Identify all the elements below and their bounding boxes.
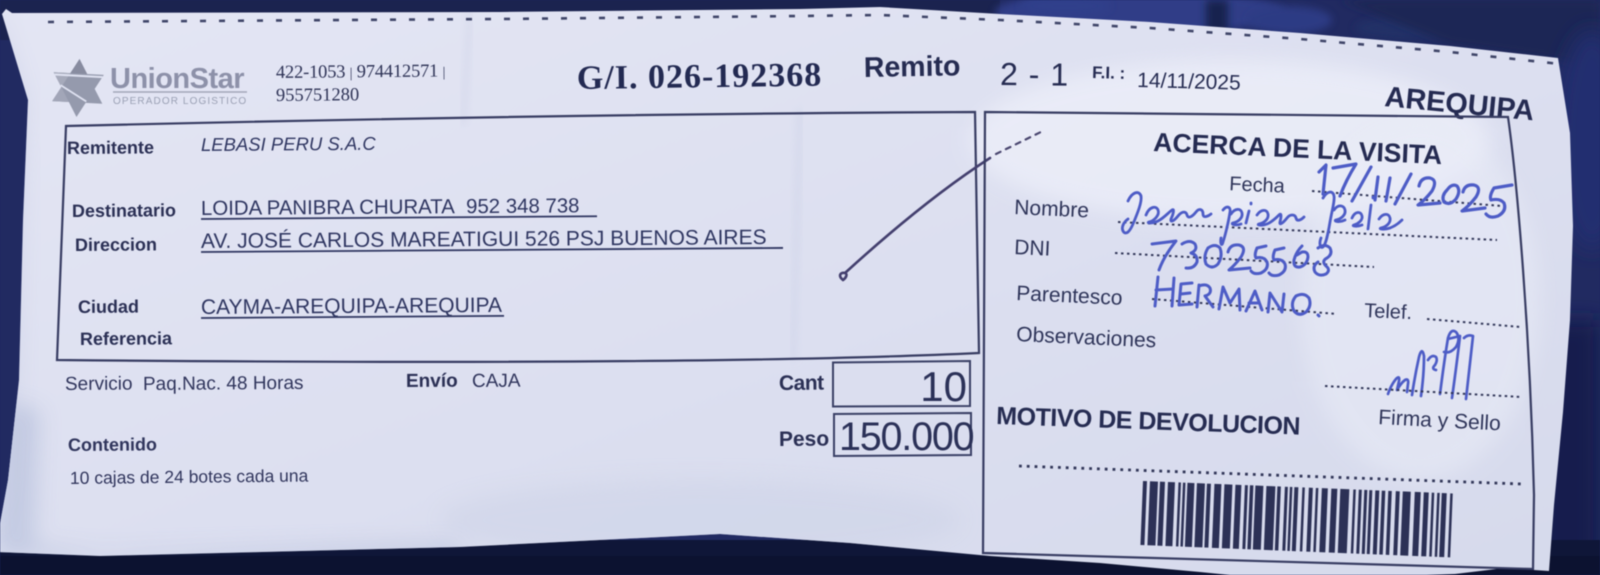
svg-text:Remito: Remito xyxy=(864,50,961,84)
svg-text:Ciudad: Ciudad xyxy=(78,297,139,317)
svg-text:Destinatario: Destinatario xyxy=(72,200,176,221)
svg-text:UnionStar: UnionStar xyxy=(110,63,244,95)
svg-text:Parentesco: Parentesco xyxy=(1016,282,1123,310)
svg-text:Servicio: Servicio xyxy=(65,374,133,395)
svg-text:F.I. :: F.I. : xyxy=(1092,63,1126,83)
svg-text:OPERADOR LOGISTICO: OPERADOR LOGISTICO xyxy=(113,96,247,107)
svg-text:Contenido: Contenido xyxy=(68,434,157,455)
svg-text:Nombre: Nombre xyxy=(1014,196,1090,222)
svg-text:Fecha: Fecha xyxy=(1229,173,1286,198)
svg-text:CAJA: CAJA xyxy=(472,371,521,392)
svg-text:Peso: Peso xyxy=(779,428,829,451)
svg-text:Referencia: Referencia xyxy=(80,328,173,349)
svg-text:Remitente: Remitente xyxy=(67,137,154,158)
svg-text:Telef.: Telef. xyxy=(1364,300,1413,324)
svg-text:422-1053 | 974412571 |: 422-1053 | 974412571 | xyxy=(276,62,445,83)
svg-text:LEBASI PERU S.A.C: LEBASI PERU S.A.C xyxy=(201,133,377,155)
svg-text:G/I. 026-192368: G/I. 026-192368 xyxy=(577,57,823,97)
svg-text:Cant: Cant xyxy=(779,372,824,395)
svg-text:150.000: 150.000 xyxy=(839,415,974,459)
svg-text:10: 10 xyxy=(920,363,967,410)
svg-text:Envío: Envío xyxy=(406,371,458,392)
svg-text:14/11/2025: 14/11/2025 xyxy=(1137,69,1241,95)
svg-text:Paq.Nac. 48 Horas: Paq.Nac. 48 Horas xyxy=(143,373,304,395)
svg-text:2 - 1: 2 - 1 xyxy=(1000,56,1069,93)
svg-text:CAYMA-AREQUIPA-AREQUIPA: CAYMA-AREQUIPA-AREQUIPA xyxy=(201,294,502,319)
svg-text:DNI: DNI xyxy=(1014,236,1051,261)
svg-text:10 cajas de 24 botes cada una: 10 cajas de 24 botes cada una xyxy=(70,466,309,488)
svg-text:Direccion: Direccion xyxy=(75,234,157,255)
svg-text:955751280: 955751280 xyxy=(276,85,359,106)
